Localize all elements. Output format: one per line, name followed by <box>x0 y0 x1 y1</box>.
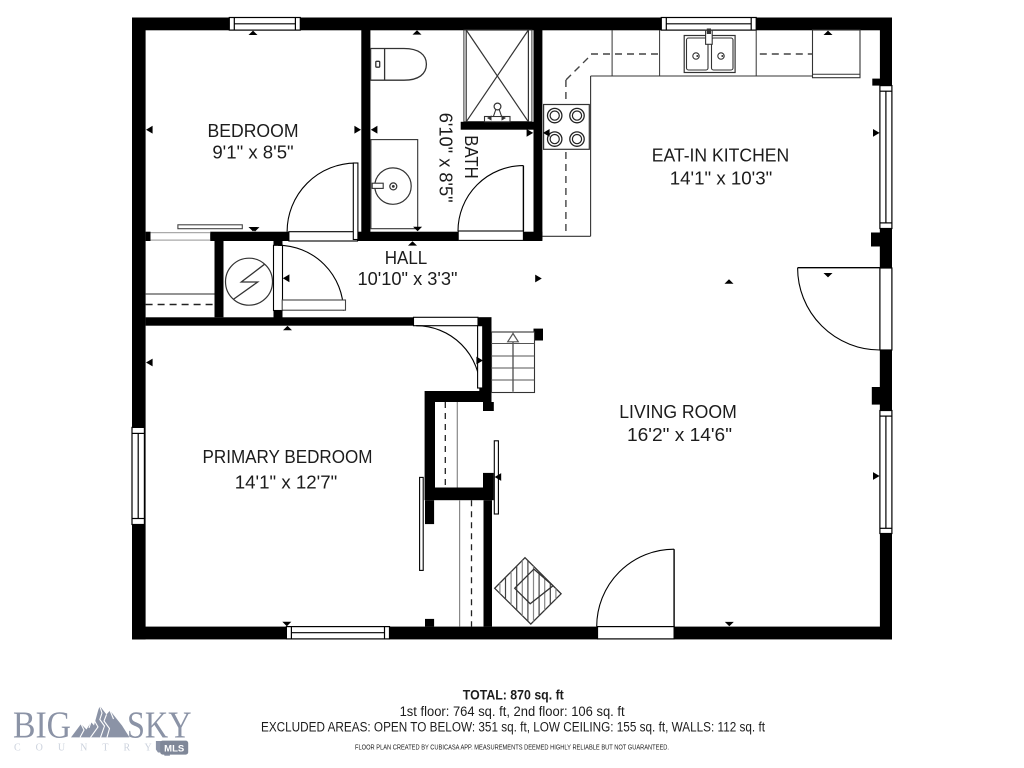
svg-text:9'1" x 8'5": 9'1" x 8'5" <box>212 141 293 162</box>
svg-text:COUNTRY: COUNTRY <box>14 743 167 754</box>
svg-text:BEDROOM: BEDROOM <box>208 120 299 141</box>
svg-text:BIG: BIG <box>13 705 71 747</box>
svg-text:SKY: SKY <box>127 705 192 747</box>
svg-text:MLS: MLS <box>164 744 184 755</box>
svg-text:PRIMARY BEDROOM: PRIMARY BEDROOM <box>203 446 373 467</box>
svg-text:16'2" x 14'6": 16'2" x 14'6" <box>627 424 732 445</box>
svg-text:6'10" x 8'5": 6'10" x 8'5" <box>436 113 457 203</box>
svg-text:1st floor: 764 sq. ft, 2nd flo: 1st floor: 764 sq. ft, 2nd floor: 106 sq… <box>400 704 625 719</box>
svg-text:EXCLUDED AREAS: OPEN TO BELOW:: EXCLUDED AREAS: OPEN TO BELOW: 351 sq. f… <box>261 720 765 735</box>
svg-text:HALL: HALL <box>385 247 428 268</box>
svg-text:LIVING ROOM: LIVING ROOM <box>619 401 737 422</box>
svg-text:10'10" x 3'3": 10'10" x 3'3" <box>358 268 458 289</box>
svg-text:14'1" x 10'3": 14'1" x 10'3" <box>670 167 773 188</box>
svg-text:FLOOR PLAN CREATED BY CUBICASA: FLOOR PLAN CREATED BY CUBICASA APP. MEAS… <box>355 743 669 752</box>
svg-text:TOTAL: 870 sq. ft: TOTAL: 870 sq. ft <box>463 688 564 703</box>
svg-text:BATH: BATH <box>461 135 482 178</box>
svg-text:14'1" x 12'7": 14'1" x 12'7" <box>235 471 338 492</box>
svg-text:EAT-IN KITCHEN: EAT-IN KITCHEN <box>652 145 790 166</box>
